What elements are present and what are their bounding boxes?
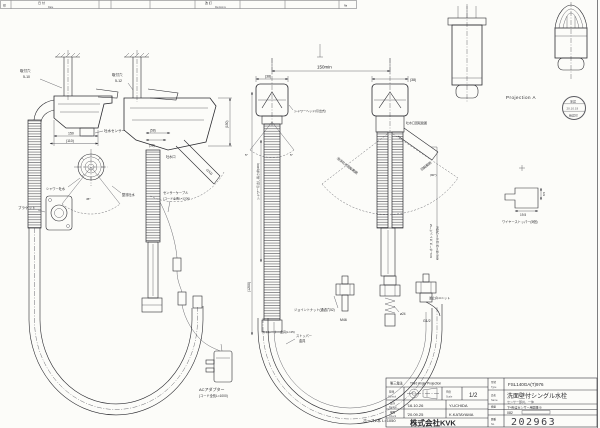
fittings: ジョイントナット(通過穴52) M46 ø24 逆止弁ユニット G1/2 bbox=[294, 274, 450, 326]
wall-bracket bbox=[46, 196, 72, 230]
fa-dim-38: (38) bbox=[265, 75, 271, 79]
ac-adapter bbox=[206, 344, 232, 382]
dim-150min-text: 150min bbox=[317, 65, 332, 70]
detail-cylinder-flanged bbox=[448, 4, 486, 102]
tb-design-en: Design bbox=[389, 406, 397, 409]
tb-check-en: Check bbox=[389, 415, 397, 418]
v2-hole-size: 5-12 bbox=[115, 79, 122, 83]
wire-dim-85: 8.5 bbox=[542, 191, 546, 196]
ac-adapter-label-2: (コード全長L=1000) bbox=[199, 393, 228, 398]
v1-dim-150: 150 bbox=[68, 132, 74, 136]
center-mark bbox=[317, 44, 323, 57]
fa-deg-right: 5° bbox=[290, 153, 294, 157]
sensor-face-detail bbox=[74, 149, 108, 186]
stamp-line-2: 20.10.19 bbox=[567, 107, 579, 111]
v1-bracket-label: ブラケット bbox=[18, 205, 36, 210]
side-view-2: 取付穴 5-12 吐水口 (58) (38) (152) (150) bbox=[112, 50, 232, 351]
stopper-label-2: 金具 bbox=[299, 338, 306, 343]
revision-date-en: Date bbox=[48, 6, 54, 9]
tb-scale-jp: 尺度 bbox=[446, 390, 452, 394]
tb-no-label-en: No. bbox=[491, 423, 495, 426]
tb-product-sub: センサー部共、一体 bbox=[507, 399, 534, 404]
tb-name-label-en: Name bbox=[491, 399, 498, 402]
tb-drawing-number: 202963 bbox=[511, 417, 556, 428]
tb-note-label-jp: 摘要 bbox=[491, 405, 497, 409]
tb-design-date: '16.10.26 bbox=[407, 403, 424, 408]
v2-hole-label: 取付穴 bbox=[112, 72, 123, 77]
tb-product: 洗面壁付シングル水栓 bbox=[507, 392, 567, 400]
drawing-sheet: 印 日 付 Date 改 訂 Revisions № 取付穴 5-10 bbox=[0, 0, 600, 428]
v1-sensor-label: 吐水センサー bbox=[104, 128, 125, 133]
revision-strip: 印 日 付 Date 改 訂 Revisions № bbox=[1, 0, 357, 9]
revision-rev-jp: 改 訂 bbox=[205, 0, 212, 5]
strainer-label: ストレーナー金具(L=45) bbox=[262, 329, 295, 334]
dim-150min: 150min bbox=[272, 58, 390, 74]
stamp-line-1: 承認 bbox=[570, 99, 576, 104]
side-view-1: 取付穴 5-10 吐水センサー 150 (110) 45° シャワー吐水 整流吐… bbox=[18, 50, 203, 415]
register-mark bbox=[519, 165, 525, 171]
third-angle-symbol bbox=[407, 388, 440, 399]
tb-projection-en: Third Angle Projection bbox=[410, 382, 441, 386]
v1-dim-110: (110) bbox=[66, 139, 74, 143]
approval-stamp: 承認 20.10.19 確認印 bbox=[563, 97, 586, 120]
m46-label: M46 bbox=[340, 318, 347, 322]
revision-no: № bbox=[344, 3, 348, 7]
stopper-label-1: ストッパー bbox=[296, 333, 312, 338]
v2-cable-label-1: センサーケーブル bbox=[163, 190, 189, 195]
revision-date-jp: 日 付 bbox=[38, 0, 45, 5]
wire-stopper-label: ワイヤーストッパー(5個) bbox=[502, 219, 538, 224]
tb-control-jp: 管理 bbox=[389, 390, 395, 394]
v2-dim-38: (38) bbox=[149, 144, 155, 148]
v2-dim-152: (152) bbox=[205, 168, 213, 176]
fb-rot-label: 吐水口回転範囲 bbox=[406, 120, 427, 125]
part2-label: KVL-ホース スリーブ付M bbox=[435, 226, 440, 260]
tb-projection-jp: 第三角法 bbox=[390, 381, 403, 386]
joint-nut-label: ジョイントナット(通過穴52) bbox=[294, 307, 335, 312]
v1-shower-label: シャワー吐水 bbox=[46, 186, 66, 191]
title-block: 第三角法 Third Angle Projection 管理 Control 尺… bbox=[386, 378, 597, 428]
vertical-dimensions: (1200) シャワー引出し長さ(約300) bbox=[247, 92, 261, 335]
tb-company: 株式会社KVK bbox=[410, 418, 456, 428]
revision-stamp: 印 bbox=[3, 2, 6, 7]
v1-hole-size: 5-10 bbox=[23, 75, 30, 79]
sensor-cable bbox=[160, 202, 220, 351]
fa-deg-left: 5° bbox=[245, 153, 249, 157]
v1-stream-label: 整流吐水 bbox=[122, 192, 136, 197]
dim-pull-length: シャワー引出し長さ(約300) bbox=[255, 163, 260, 200]
v2-cable-label-2: (コード全長L=1200) bbox=[163, 196, 190, 201]
revision-rev-en: Revisions bbox=[215, 6, 227, 9]
tb-design-name: Y.UCHIDA bbox=[449, 403, 468, 408]
tb-model-label-jp: 型式 bbox=[491, 380, 497, 384]
tb-note: 下4桁はセンサー用図番 B bbox=[507, 405, 542, 410]
tb-name-label-jp: 品名 bbox=[491, 393, 497, 397]
tb-no-label-jp: 図番 bbox=[491, 417, 497, 421]
fb-deg90: (90°) bbox=[430, 173, 437, 177]
fa-head-label: シャワーヘッド(引出式) bbox=[294, 108, 326, 113]
dim-1200: (1200) bbox=[247, 282, 251, 292]
tb-check-name: K.KATAYAMA bbox=[449, 412, 474, 417]
fb-dim-38: (38) bbox=[410, 78, 416, 82]
tb-design-jp: 設計 bbox=[390, 401, 396, 405]
wire-stopper-detail: 19.5 8.5 ワイヤーストッパー(5個) bbox=[502, 188, 546, 224]
wire-dim-195: 19.5 bbox=[520, 213, 526, 217]
tb-model-label-en: Type bbox=[491, 386, 497, 389]
v2-spout-label: 吐水口 bbox=[166, 154, 176, 159]
v1-angle: 45° bbox=[86, 197, 91, 201]
check-valve-label: 逆止弁ユニット bbox=[429, 295, 450, 300]
part1-label: KVL-ホース ストッパーM bbox=[428, 224, 433, 258]
v2-dim-150v: (150) bbox=[225, 121, 229, 128]
tb-check-date: '20.09.25 bbox=[407, 412, 424, 417]
tb-note-sub: 082 bbox=[507, 411, 513, 415]
g12-label: G1/2 bbox=[423, 319, 431, 323]
fb-rot2-label: 回転範囲 bbox=[419, 160, 432, 172]
dia24-label: ø24 bbox=[400, 312, 406, 316]
detail-cylinder-crown bbox=[555, 2, 587, 80]
tb-model: FSL140GA(T)976 bbox=[508, 382, 544, 387]
technical-drawing: 印 日 付 Date 改 訂 Revisions № 取付穴 5-10 bbox=[0, 0, 600, 428]
projection-a-label: Projection A bbox=[506, 95, 536, 100]
stamp-line-3: 確認印 bbox=[569, 113, 578, 118]
tb-check-jp: 検図 bbox=[390, 410, 396, 414]
ac-adapter-label-1: ACアダプター bbox=[199, 386, 225, 392]
tb-scale-en: Scale bbox=[446, 396, 453, 399]
v2-dim-58: (58) bbox=[150, 129, 156, 133]
tb-control-en: Control bbox=[388, 396, 397, 399]
v1-hole-label: 取付穴 bbox=[20, 68, 31, 73]
tb-scale-value: 1/2 bbox=[469, 393, 478, 399]
